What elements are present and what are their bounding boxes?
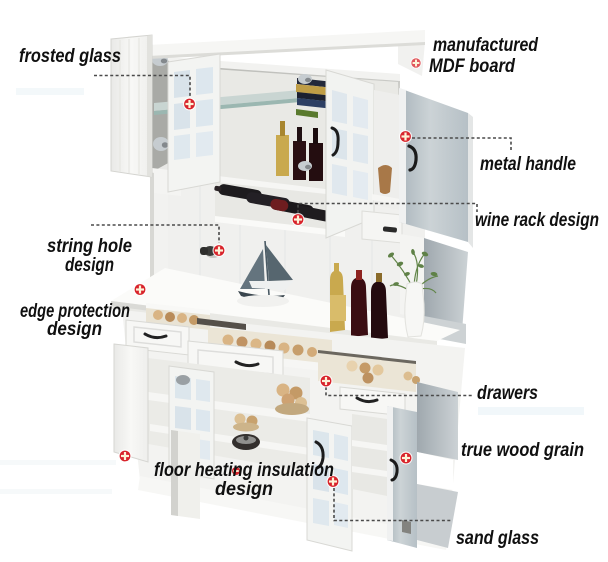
svg-text:design: design bbox=[65, 255, 114, 276]
svg-text:MDF board: MDF board bbox=[429, 56, 515, 77]
svg-text:frosted glass: frosted glass bbox=[19, 46, 121, 67]
svg-text:string hole: string hole bbox=[47, 236, 132, 257]
svg-text:sand glass: sand glass bbox=[456, 528, 539, 549]
svg-text:metal handle: metal handle bbox=[480, 154, 576, 175]
svg-text:floor heating insulation: floor heating insulation bbox=[154, 460, 334, 481]
svg-text:drawers: drawers bbox=[477, 383, 538, 404]
svg-text:manufactured: manufactured bbox=[433, 35, 538, 56]
svg-text:true wood grain: true wood grain bbox=[461, 440, 584, 461]
svg-text:design: design bbox=[215, 479, 273, 500]
svg-text:design: design bbox=[47, 319, 102, 340]
svg-text:wine rack design: wine rack design bbox=[475, 210, 599, 231]
